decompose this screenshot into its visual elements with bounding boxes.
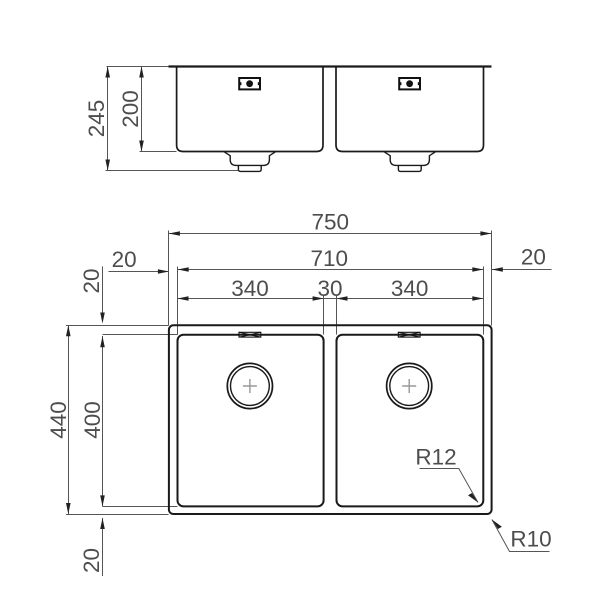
svg-text:340: 340 [391, 276, 429, 301]
svg-text:340: 340 [231, 276, 269, 301]
svg-text:200: 200 [118, 90, 143, 128]
svg-text:440: 440 [46, 401, 71, 439]
svg-text:30: 30 [317, 276, 342, 301]
svg-text:400: 400 [80, 401, 105, 439]
svg-text:20: 20 [79, 548, 104, 573]
svg-text:R10: R10 [510, 527, 551, 552]
svg-text:750: 750 [312, 210, 350, 235]
svg-text:245: 245 [84, 100, 109, 138]
svg-text:20: 20 [79, 268, 104, 293]
svg-text:710: 710 [311, 246, 349, 271]
svg-text:20: 20 [112, 247, 137, 272]
svg-text:20: 20 [521, 245, 546, 270]
svg-text:R12: R12 [415, 445, 456, 470]
